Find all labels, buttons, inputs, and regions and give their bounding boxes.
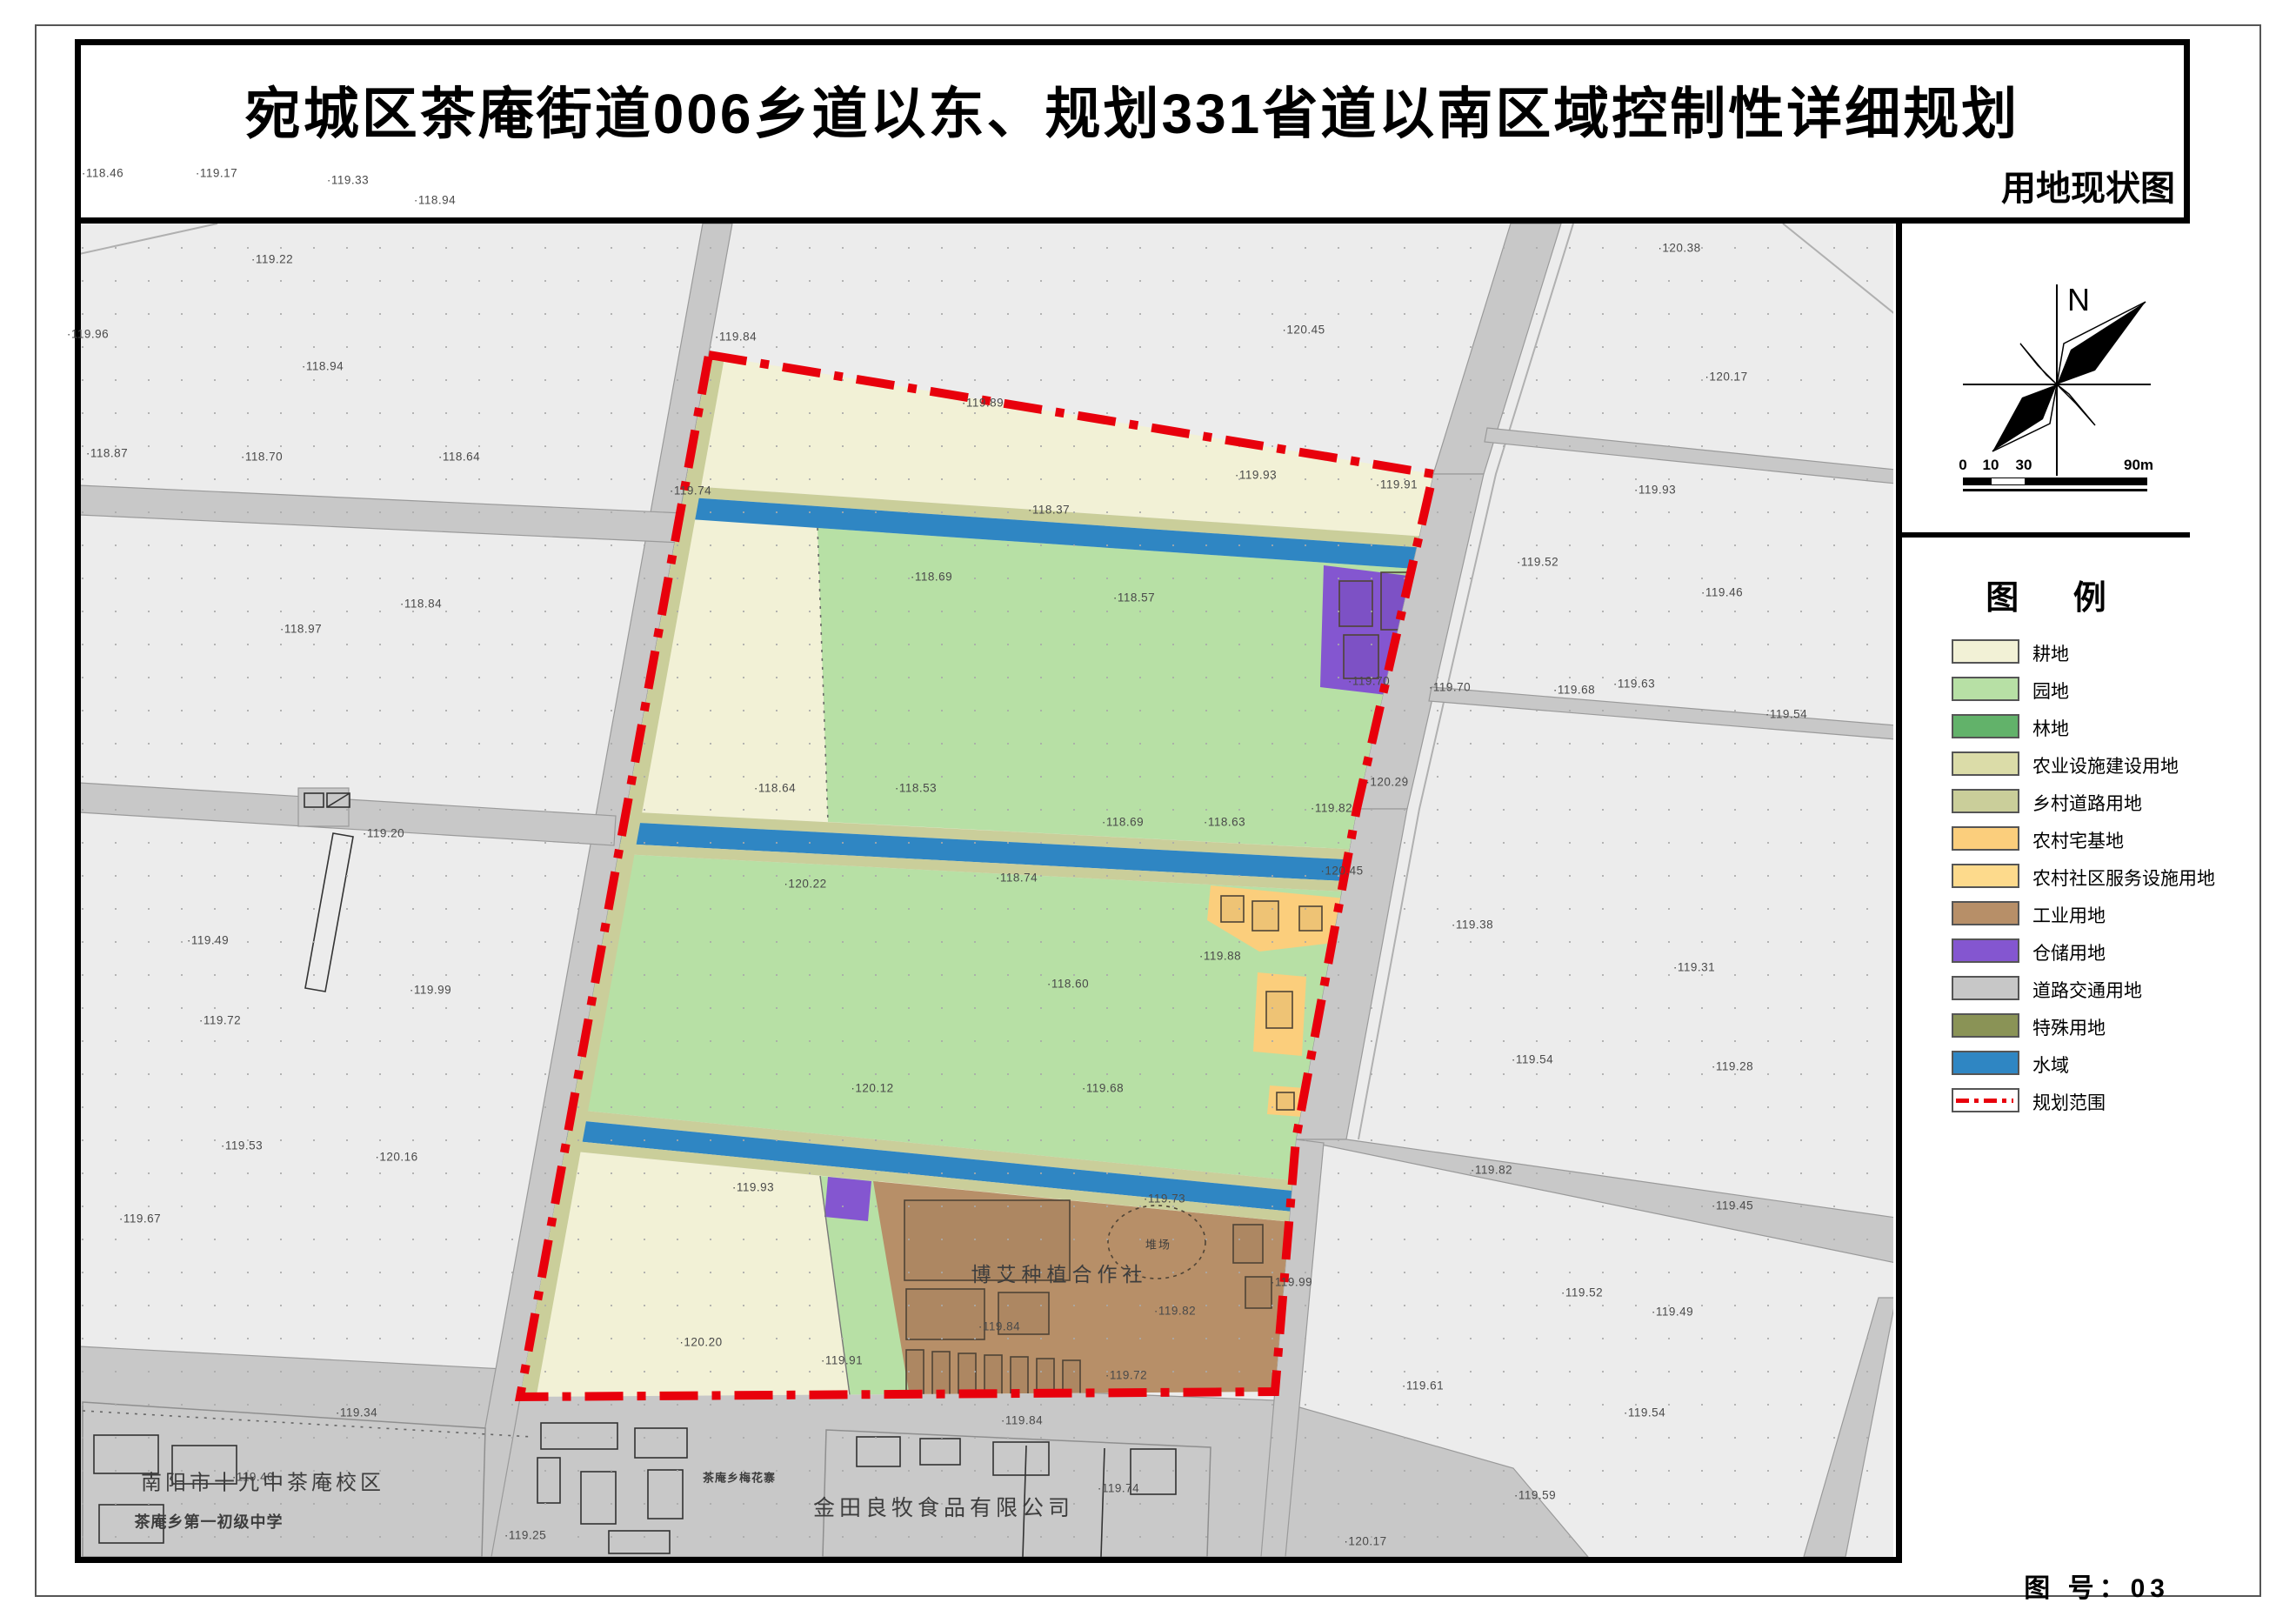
scale-bar-segments (1963, 478, 2147, 485)
legend-label: 农村社区服务设施用地 (2032, 865, 2215, 891)
legend-swatch (1952, 938, 2019, 963)
legend-swatch (1952, 751, 2019, 776)
planning-map-page: 宛城区茶庵街道006乡道以东、规划331省道以南区域控制性详细规划 用地现状图 … (0, 0, 2296, 1623)
legend-label: 园地 (2032, 678, 2069, 704)
legend-swatch (1952, 864, 2019, 888)
north-section: N 0103090m (1902, 224, 2190, 538)
legend-item: 特殊用地 (1902, 1007, 2190, 1045)
legend-section: 图 例 耕地园地林地农业设施建设用地乡村道路用地农村宅基地农村社区服务设施用地工… (1902, 538, 2190, 1555)
legend-label: 道路交通用地 (2032, 977, 2142, 1003)
side-panel: N 0103090m 图 例 耕地园地林地农业设施建设用地乡村道路用地农村宅基地… (1896, 224, 2190, 1563)
legend-item: 乡村道路用地 (1902, 783, 2190, 820)
scale-tick: 30 (2016, 457, 2032, 474)
legend-swatch (1952, 789, 2019, 813)
legend-label: 农业设施建设用地 (2032, 752, 2179, 778)
legend-item: 林地 (1902, 708, 2190, 745)
legend-label: 林地 (2032, 715, 2069, 741)
scale-bar-underline (1963, 489, 2147, 491)
legend-item: 耕地 (1902, 633, 2190, 671)
legend-items: 耕地园地林地农业设施建设用地乡村道路用地农村宅基地农村社区服务设施用地工业用地仓… (1902, 633, 2190, 1119)
legend-swatch (1952, 639, 2019, 664)
legend-label: 工业用地 (2032, 902, 2106, 928)
legend-item: 园地 (1902, 671, 2190, 708)
figure-number-value: 03 (2131, 1574, 2170, 1603)
scale-tick: 90m (2124, 457, 2153, 474)
legend-label: 乡村道路用地 (2032, 790, 2142, 816)
legend-swatch (1952, 1013, 2019, 1038)
compass: N (1902, 224, 2191, 476)
legend-item: 规划范围 (1902, 1082, 2190, 1119)
map-subtitle: 用地现状图 (2001, 160, 2175, 210)
north-label: N (2067, 282, 2090, 317)
figure-number: 图 号：03 (2024, 1566, 2170, 1605)
scale-tick: 0 (1959, 457, 1966, 474)
legend-swatch (1952, 976, 2019, 1000)
legend-label: 水域 (2032, 1052, 2069, 1078)
map-frame (75, 39, 2190, 1563)
legend-item: 农业设施建设用地 (1902, 745, 2190, 783)
legend-label: 特殊用地 (2032, 1014, 2106, 1040)
scale-bar: 0103090m (1902, 457, 2190, 509)
legend-swatch (1952, 1051, 2019, 1075)
legend-swatch (1952, 714, 2019, 738)
scale-tick: 10 (1983, 457, 1999, 474)
legend-swatch-boundary-line (1952, 1088, 2019, 1112)
title-bar: 宛城区茶庵街道006乡道以东、规划331省道以南区域控制性详细规划 用地现状图 (81, 45, 2184, 224)
page-title: 宛城区茶庵街道006乡道以东、规划331省道以南区域控制性详细规划 (81, 70, 2184, 150)
legend-item: 农村宅基地 (1902, 820, 2190, 858)
legend-item: 道路交通用地 (1902, 970, 2190, 1007)
legend-label: 规划范围 (2032, 1089, 2106, 1115)
legend-label: 耕地 (2032, 640, 2069, 666)
legend-label: 农村宅基地 (2032, 827, 2124, 853)
legend-item: 农村社区服务设施用地 (1902, 858, 2190, 895)
legend-swatch (1952, 677, 2019, 701)
legend-item: 水域 (1902, 1045, 2190, 1082)
legend-swatch (1952, 901, 2019, 925)
figure-number-label: 图 号： (2024, 1574, 2130, 1603)
legend-label: 仓储用地 (2032, 939, 2106, 965)
legend-swatch (1952, 826, 2019, 851)
legend-title: 图 例 (1902, 571, 2190, 618)
legend-item: 仓储用地 (1902, 932, 2190, 970)
legend-item: 工业用地 (1902, 895, 2190, 932)
